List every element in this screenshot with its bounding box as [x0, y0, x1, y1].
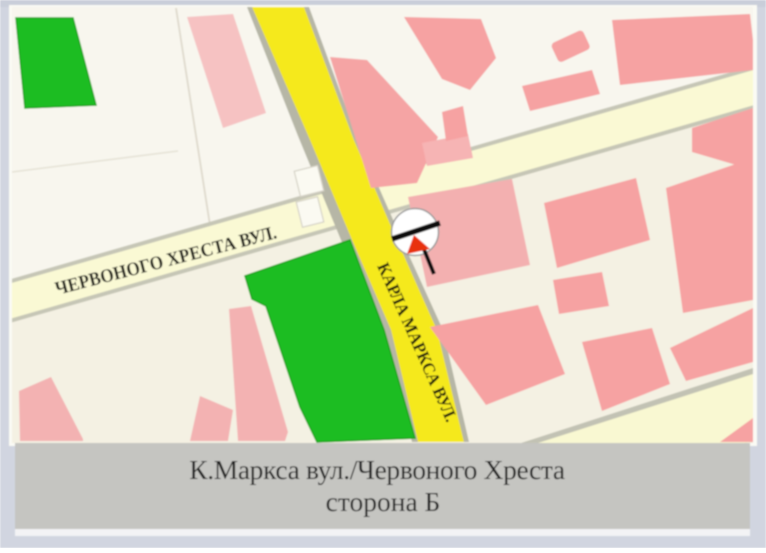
svg-text:К.Маркса вул./Червоного Хреста: К.Маркса вул./Червоного Хреста	[189, 454, 565, 485]
svg-text:сторона Б: сторона Б	[326, 486, 441, 517]
